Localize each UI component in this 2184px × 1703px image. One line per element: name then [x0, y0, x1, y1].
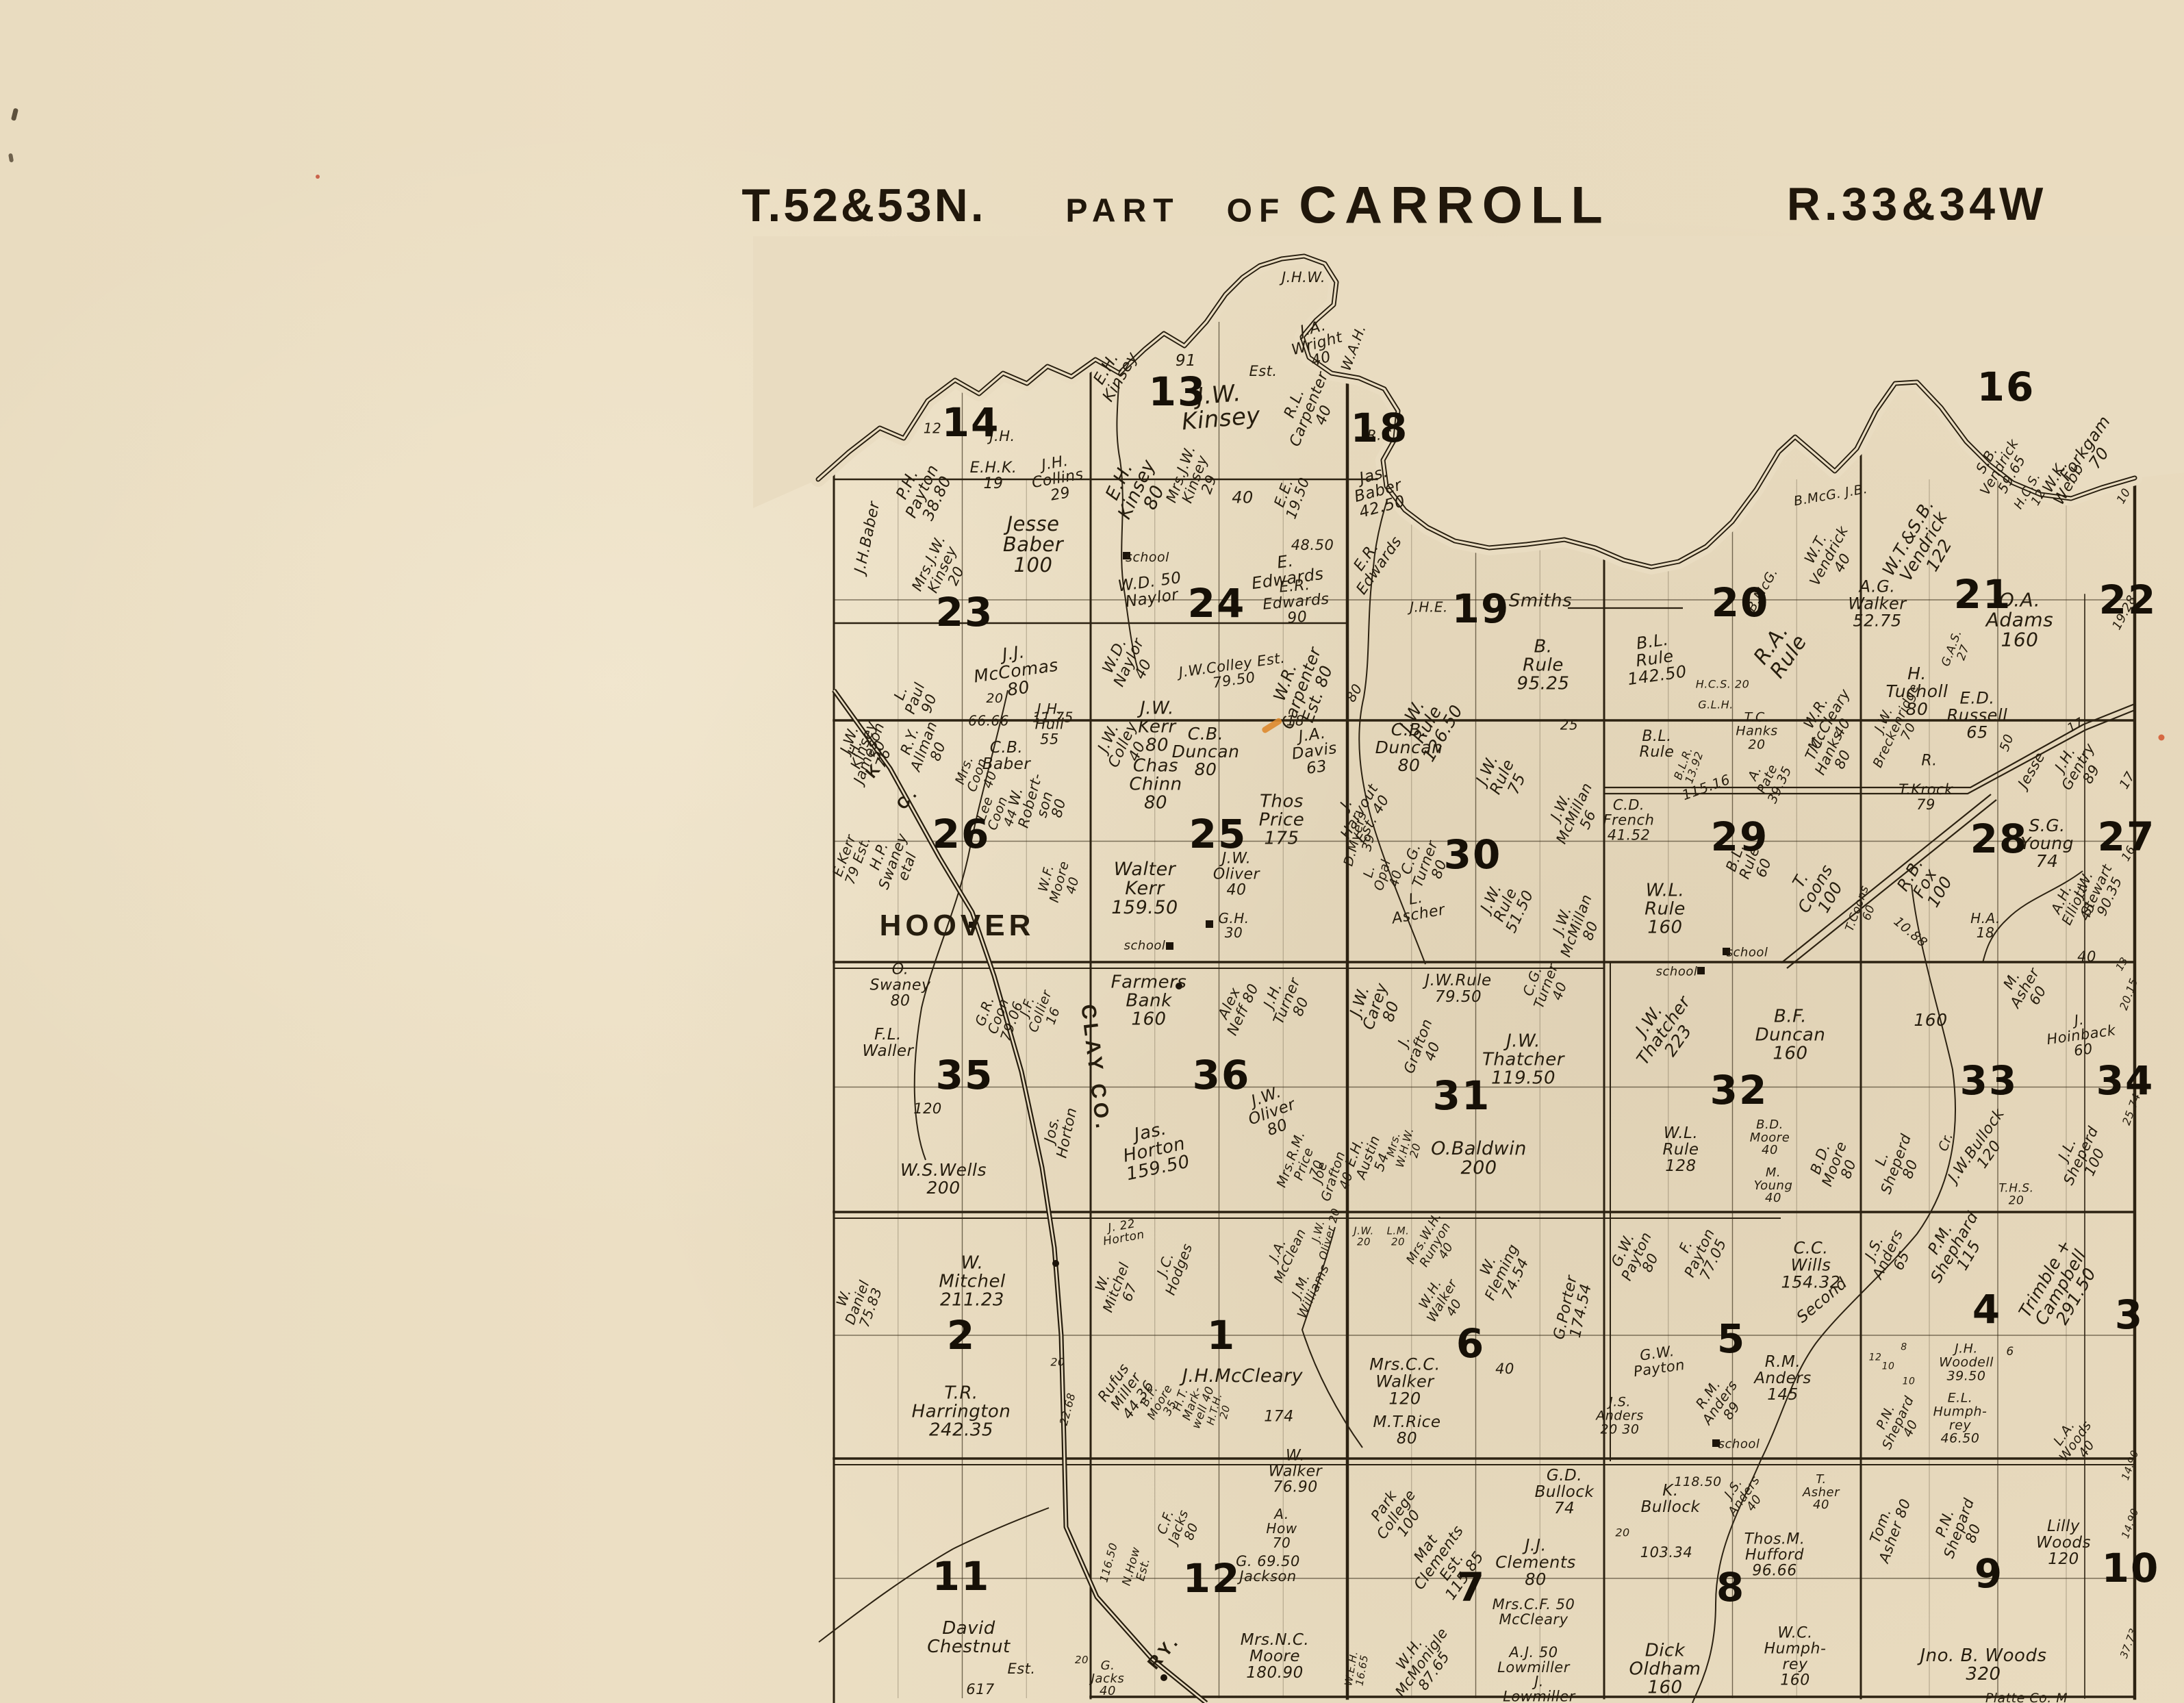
section-number: 30: [1444, 831, 1502, 878]
parcel-label: O. Swaney 80: [870, 963, 931, 1010]
parcel-label: M.T.Rice 80: [1373, 1415, 1441, 1448]
parcel-label: J.H.W.: [1282, 270, 1325, 286]
section-number: 19: [1452, 585, 1510, 632]
parcel-label: J.H. Woodell 39.50: [1939, 1342, 1994, 1383]
section-number: 5: [1717, 1315, 1746, 1362]
parcel-label: 120: [913, 1102, 942, 1117]
parcel-label: 20: [1615, 1528, 1629, 1539]
section-number: 20: [1712, 579, 1770, 626]
parcel-label: A. How 70: [1266, 1507, 1297, 1550]
section-number: 24: [1188, 580, 1246, 627]
parcel-label: 40: [2077, 950, 2096, 965]
parcel-label: school: [1656, 966, 1698, 979]
parcel-label: J.W. 20: [1354, 1226, 1374, 1247]
parcel-label: J. Hoinback 60: [2044, 1008, 2119, 1062]
parcel-label: 20: [1050, 1357, 1065, 1369]
section-number: 26: [932, 811, 991, 857]
parcel-label: W.C. Humph- rey 160: [1764, 1626, 1827, 1689]
parcel-label: Thos Price 175: [1259, 792, 1304, 848]
parcel-label: S.G. Young 74: [2020, 817, 2074, 870]
parcel-label: school: [1727, 947, 1768, 960]
parcel-label: C.B. Duncan 80: [1375, 721, 1443, 774]
section-number: 28: [1970, 816, 2029, 862]
section-number: 16: [1977, 364, 2035, 410]
parcel-label: Jno. B. Woods 320: [1920, 1647, 2046, 1684]
section-number: 36: [1193, 1052, 1251, 1098]
parcel-label: 617: [966, 1682, 995, 1698]
parcel-label: 20: [986, 692, 1003, 706]
parcel-label: B.F. Duncan 160: [1755, 1007, 1826, 1063]
section-number: 25: [1189, 811, 1247, 857]
parcel-label: O.Baldwin 200: [1431, 1139, 1527, 1178]
parcel-label: Mrs.C.F. 50 McCleary: [1493, 1598, 1575, 1628]
section-number: 31: [1433, 1072, 1491, 1119]
section-number: 23: [936, 589, 994, 635]
parcel-label: G.H. 30: [1218, 911, 1249, 940]
section-number: 22: [2099, 577, 2157, 623]
parcel-label: 66.66: [968, 714, 1009, 729]
parcel-label: J.W.Rule 79.50: [1425, 973, 1491, 1006]
parcel-label: 8: [1901, 1343, 1907, 1353]
section-number: 34: [2096, 1057, 2155, 1104]
parcel-label: J.J. Clements 80: [1495, 1537, 1575, 1589]
parcel-label: Platte Co. M: [1985, 1692, 2068, 1703]
parcel-label: G.D. Bullock 74: [1535, 1468, 1595, 1517]
parcel-label: 40: [1232, 490, 1254, 507]
section-number: 6: [1456, 1320, 1485, 1367]
section-number: 29: [1711, 813, 1769, 860]
parcel-label: Walter Kerr 159.50: [1111, 860, 1178, 918]
map-linework: [0, 0, 2184, 1703]
parcel-label: C.C. Wills 154.32: [1781, 1240, 1841, 1291]
parcel-label: J.W. Oliver 40: [1213, 852, 1260, 899]
parcel-label: Lilly Woods 120: [2036, 1519, 2091, 1568]
parcel-label: Thos.M. Hufford 96.66: [1744, 1532, 1805, 1580]
section-number: 27: [2098, 813, 2156, 860]
parcel-label: David Chestnut: [927, 1619, 1011, 1656]
parcel-label: school: [1718, 1439, 1760, 1452]
section-number: 8: [1716, 1564, 1745, 1611]
parcel-label: A.G. Walker 52.75: [1848, 579, 1906, 630]
section-number: 9: [1975, 1550, 2003, 1597]
parcel-label: G. Jacks 40: [1091, 1660, 1125, 1698]
section-number: 33: [1960, 1057, 2018, 1104]
parcel-label: T.R. Harrington 242.35: [912, 1384, 1011, 1439]
plat-map-page: T.52&53N. PART OF CARROLL R.33&34W: [0, 0, 2184, 1703]
parcel-label: school: [1126, 551, 1169, 565]
section-number: 10: [2102, 1545, 2160, 1591]
section-number: 32: [1710, 1067, 1768, 1113]
parcel-label: G. 69.50 Jackson: [1236, 1554, 1300, 1585]
parcel-label: 160: [1914, 1011, 1947, 1029]
parcel-label: M. Young 40: [1754, 1167, 1793, 1205]
section-number: 4: [1972, 1286, 2001, 1333]
parcel-label: B.L. Rule 142.50: [1622, 629, 1688, 688]
parcel-label: 12: [1869, 1353, 1882, 1363]
section-number: 35: [936, 1052, 994, 1098]
parcel-label: 20: [1075, 1655, 1089, 1666]
parcel-label: Est.: [1249, 364, 1277, 379]
parcel-label: 91: [1176, 353, 1196, 370]
parcel-label: T. Asher 40: [1803, 1474, 1840, 1512]
section-number: 1: [1207, 1312, 1236, 1359]
parcel-label: Mrs.N.C. Moore 180.90: [1241, 1632, 1309, 1682]
parcel-label: 103.34: [1640, 1546, 1692, 1561]
parcel-label: R.M. Anders 145: [1754, 1354, 1812, 1404]
section-number: 2: [947, 1312, 976, 1359]
parcel-label: 10: [1903, 1377, 1916, 1387]
parcel-label: Farmers Bank 160: [1111, 973, 1187, 1029]
parcel-label: J.H.E.: [1410, 601, 1448, 615]
parcel-label: Mrs.C.C. Walker 120: [1369, 1357, 1440, 1408]
parcel-label: J.H. Collins 29: [1028, 452, 1088, 507]
parcel-label: H.A. 18: [1970, 911, 2001, 940]
parcel-label: J.W. Kerr 80: [1138, 699, 1176, 755]
parcel-label: 18: [1286, 714, 1304, 729]
section-number: 14: [942, 399, 1000, 446]
parcel-label: 118.50: [1674, 1476, 1721, 1489]
parcel-label: Jesse Baber 100: [1003, 514, 1063, 575]
parcel-label: J.W. Thatcher 119.50: [1482, 1032, 1564, 1087]
parcel-label: E.H.K. 19: [970, 461, 1017, 492]
parcel-label: E.R. Edwards 90: [1261, 577, 1332, 629]
parcel-label: 6: [2006, 1346, 2014, 1359]
section-number: 3: [2115, 1291, 2144, 1338]
parcel-label: H.C.S. 20: [1696, 679, 1750, 691]
parcel-label: B.L. Rule: [1640, 729, 1675, 761]
parcel-label: W.L. Rule 128: [1662, 1126, 1699, 1175]
parcel-label: 10: [1882, 1362, 1895, 1372]
parcel-label: HOOVER: [880, 910, 1035, 942]
parcel-label: E.D. Russell 65: [1947, 690, 2008, 742]
parcel-label: W. Walker 76.90: [1269, 1449, 1322, 1496]
parcel-label: E.L. Humph- rey 46.50: [1933, 1392, 1988, 1446]
section-number: 21: [1954, 571, 2012, 618]
parcel-label: W.S.Wells 200: [900, 1161, 987, 1197]
parcel-label: Chas Chinn 80: [1129, 757, 1182, 812]
parcel-label: B.D. Moore 40: [1750, 1119, 1790, 1157]
section-number: 7: [1457, 1564, 1486, 1611]
parcel-label: C.D. French 41.52: [1603, 798, 1655, 842]
parcel-label: 25: [1560, 718, 1578, 733]
parcel-label: Smiths: [1509, 592, 1572, 610]
parcel-label: J.H. Hull 55: [1035, 702, 1065, 746]
parcel-label: T.C. Hanks 20: [1736, 711, 1777, 751]
parcel-label: W. Mitchel 211.23: [939, 1254, 1005, 1309]
parcel-label: 174: [1264, 1410, 1294, 1426]
parcel-label: 12: [924, 422, 941, 436]
parcel-label: B. Rule 95.25: [1517, 638, 1570, 693]
parcel-label: A.J. 50 Lowmiller: [1497, 1645, 1570, 1676]
parcel-label: J. Lowmiller 50: [1503, 1674, 1575, 1703]
parcel-label: T.H.S. 20: [1998, 1183, 2033, 1207]
parcel-label: J.A. Davis 63: [1288, 724, 1341, 779]
parcel-label: Est.: [1007, 1662, 1035, 1677]
section-number: 18: [1351, 405, 1409, 451]
parcel-label: T.Krock 79: [1899, 783, 1953, 813]
section-number: 11: [932, 1553, 991, 1600]
section-number: 13: [1149, 368, 1207, 415]
parcel-label: F.L. Waller: [863, 1027, 914, 1060]
parcel-label: 40: [1495, 1362, 1514, 1377]
parcel-label: school: [1124, 940, 1166, 953]
parcel-label: J.S. Anders 20 30: [1596, 1396, 1644, 1436]
parcel-label: L.M. 20: [1387, 1226, 1410, 1247]
parcel-label: R.: [1921, 754, 1937, 770]
section-number: 12: [1183, 1555, 1241, 1602]
parcel-label: W.L. Rule 160: [1645, 881, 1686, 937]
parcel-label: G.L.H.: [1698, 700, 1734, 711]
parcel-label: Dick Oldham 160: [1629, 1641, 1701, 1697]
